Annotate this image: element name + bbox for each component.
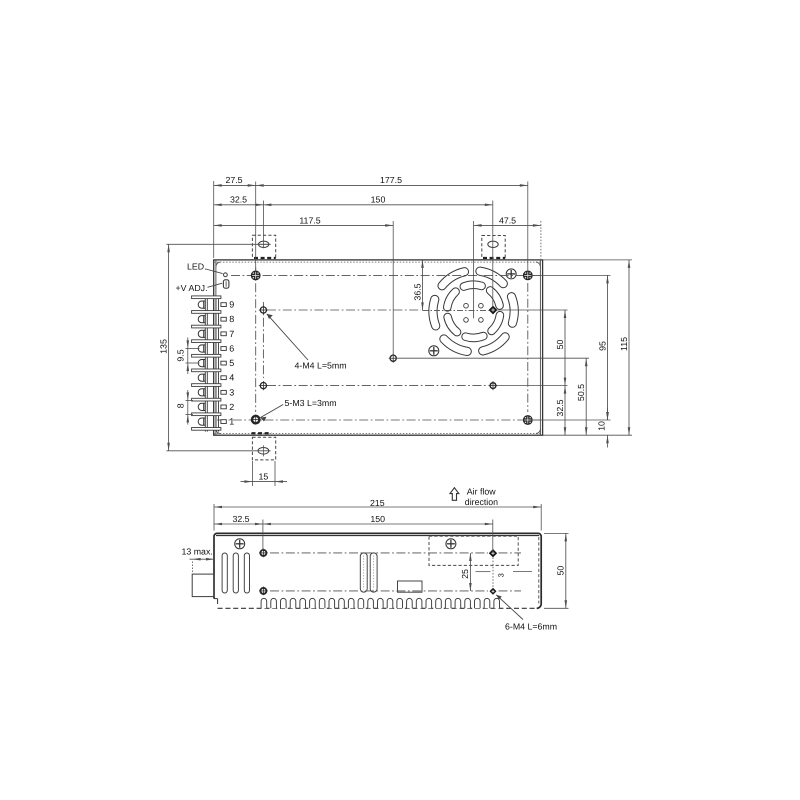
svg-text:4: 4 (229, 373, 234, 383)
svg-text:50: 50 (555, 340, 565, 350)
svg-text:50: 50 (556, 566, 566, 576)
svg-text:215: 215 (370, 498, 385, 508)
svg-text:9.5: 9.5 (175, 349, 185, 361)
svg-text:150: 150 (371, 195, 386, 205)
svg-text:Air flow: Air flow (467, 486, 496, 496)
svg-text:7: 7 (229, 329, 234, 339)
svg-text:27.5: 27.5 (225, 175, 242, 185)
svg-text:117.5: 117.5 (299, 215, 320, 225)
svg-text:32.5: 32.5 (230, 195, 247, 205)
svg-text:32.5: 32.5 (232, 514, 249, 524)
svg-text:6: 6 (229, 344, 234, 354)
svg-text:36.5: 36.5 (412, 283, 422, 300)
svg-text:95: 95 (597, 341, 607, 351)
svg-text:150: 150 (370, 514, 385, 524)
svg-text:177.5: 177.5 (380, 175, 402, 185)
svg-text:25: 25 (460, 569, 470, 579)
svg-text:3: 3 (229, 387, 234, 397)
svg-text:+V ADJ.: +V ADJ. (176, 283, 208, 293)
svg-text:115: 115 (619, 337, 629, 351)
svg-text:10: 10 (597, 421, 607, 431)
svg-text:3: 3 (497, 573, 506, 577)
svg-text:9: 9 (229, 300, 234, 310)
svg-text:135: 135 (159, 339, 169, 354)
svg-text:50.5: 50.5 (576, 384, 586, 401)
svg-text:8: 8 (175, 403, 185, 408)
svg-text:8: 8 (229, 314, 234, 324)
svg-text:2: 2 (229, 402, 234, 412)
svg-text:47.5: 47.5 (499, 215, 516, 225)
svg-text:5: 5 (229, 358, 234, 368)
svg-text:6-M4 L=6mm: 6-M4 L=6mm (505, 622, 557, 632)
svg-text:1: 1 (229, 417, 234, 427)
svg-text:4-M4 L=5mm: 4-M4 L=5mm (295, 360, 347, 370)
svg-text:LED.: LED. (187, 261, 207, 271)
svg-text:5-M3 L=3mm: 5-M3 L=3mm (285, 398, 337, 408)
svg-text:15: 15 (259, 471, 269, 481)
svg-text:32.5: 32.5 (555, 399, 565, 416)
svg-text:direction: direction (465, 497, 498, 507)
svg-text:13 max.: 13 max. (182, 547, 213, 557)
